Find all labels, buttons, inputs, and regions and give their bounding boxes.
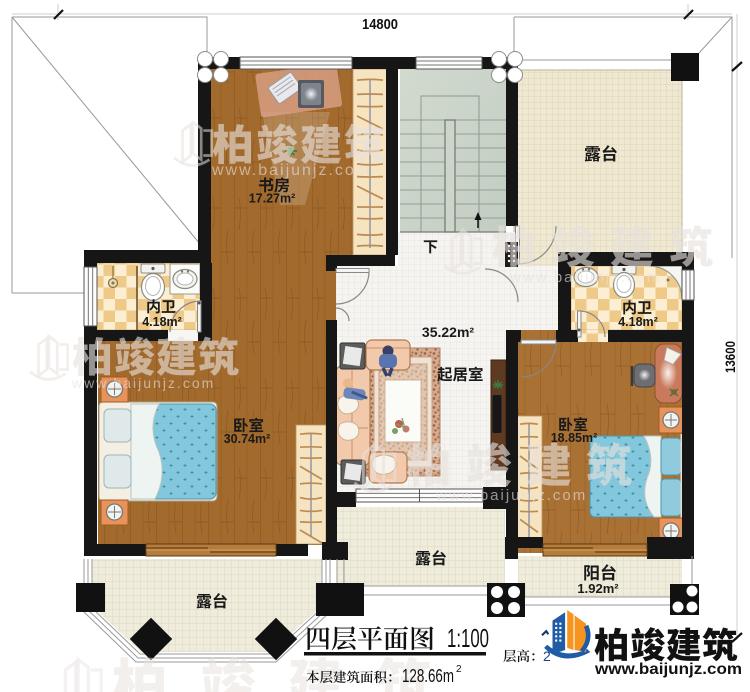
svg-text:35.22m²: 35.22m²	[422, 324, 474, 340]
svg-text:1:100: 1:100	[447, 623, 489, 653]
svg-text:4.18m²: 4.18m²	[618, 315, 658, 329]
svg-text:www.baijunjz.com: www.baijunjz.com	[71, 375, 215, 391]
svg-text:18.85m²: 18.85m²	[551, 431, 598, 445]
svg-text:14800: 14800	[362, 16, 398, 33]
svg-text:www.baijunjz.com: www.baijunjz.com	[509, 269, 661, 286]
svg-text:128.66m: 128.66m	[402, 666, 454, 686]
svg-text:13600: 13600	[723, 341, 738, 373]
svg-text:30.74m²: 30.74m²	[224, 432, 271, 446]
svg-text:www.baijunjz.com: www.baijunjz.com	[211, 162, 371, 179]
svg-text:www.baijunjz.com: www.baijunjz.com	[594, 661, 742, 678]
svg-text:17.27m²: 17.27m²	[249, 192, 296, 206]
svg-text:4.18m²: 4.18m²	[142, 315, 182, 329]
svg-text:www.baijunjz.com: www.baijunjz.com	[435, 487, 587, 504]
svg-text:1.92m²: 1.92m²	[577, 581, 619, 596]
svg-text:2: 2	[456, 664, 462, 675]
